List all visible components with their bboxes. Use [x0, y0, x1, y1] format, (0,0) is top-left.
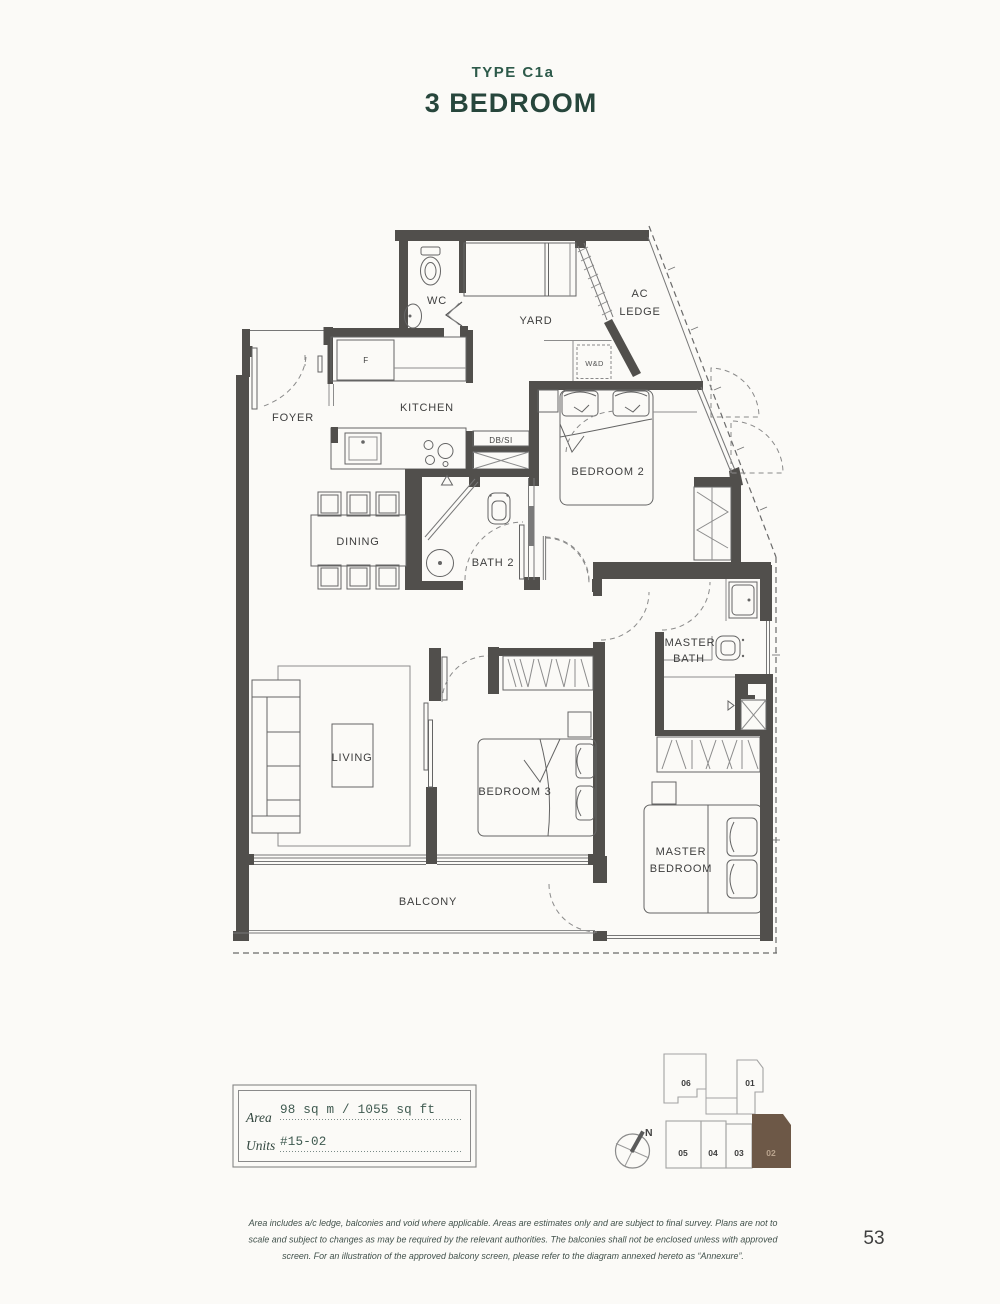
svg-text:WC: WC — [427, 295, 447, 307]
svg-text:DB/SI: DB/SI — [489, 436, 512, 445]
svg-text:KITCHEN: KITCHEN — [400, 402, 454, 414]
svg-text:98 sq m / 1055 sq ft: 98 sq m / 1055 sq ft — [280, 1103, 435, 1117]
svg-text:BEDROOM 3: BEDROOM 3 — [478, 786, 551, 798]
svg-text:BEDROOM: BEDROOM — [650, 863, 712, 875]
svg-text:BATH 2: BATH 2 — [472, 557, 515, 569]
svg-text:F: F — [363, 356, 368, 365]
svg-text:3 BEDROOM: 3 BEDROOM — [425, 88, 598, 118]
svg-text:LEDGE: LEDGE — [619, 306, 660, 318]
svg-text:screen. For an illustration of: screen. For an illustration of the appro… — [282, 1251, 744, 1261]
svg-text:MASTER: MASTER — [656, 846, 707, 858]
svg-text:BEDROOM 2: BEDROOM 2 — [571, 466, 644, 478]
svg-text:#15-02: #15-02 — [280, 1135, 327, 1149]
svg-text:Area includes a/c ledge, balco: Area includes a/c ledge, balconies and v… — [248, 1218, 778, 1228]
svg-text:FOYER: FOYER — [272, 412, 314, 424]
svg-text:03: 03 — [734, 1148, 744, 1158]
svg-text:01: 01 — [745, 1078, 755, 1088]
svg-text:W&D: W&D — [585, 359, 604, 368]
svg-text:Area: Area — [245, 1110, 272, 1125]
svg-text:53: 53 — [863, 1228, 884, 1249]
svg-text:YARD: YARD — [520, 315, 553, 327]
svg-text:06: 06 — [681, 1078, 691, 1088]
svg-text:BALCONY: BALCONY — [399, 896, 457, 908]
svg-text:DINING: DINING — [336, 536, 379, 548]
svg-text:Units: Units — [246, 1138, 275, 1153]
svg-text:MASTER: MASTER — [665, 637, 716, 649]
svg-text:TYPE C1a: TYPE C1a — [472, 64, 555, 81]
svg-text:05: 05 — [678, 1148, 688, 1158]
svg-text:LIVING: LIVING — [332, 752, 373, 764]
svg-text:N: N — [645, 1127, 653, 1139]
svg-text:04: 04 — [708, 1148, 718, 1158]
svg-text:AC: AC — [632, 288, 649, 300]
svg-text:02: 02 — [766, 1148, 776, 1158]
svg-text:BATH: BATH — [673, 653, 705, 665]
svg-text:scale and subject to changes a: scale and subject to changes as may be r… — [249, 1235, 779, 1245]
